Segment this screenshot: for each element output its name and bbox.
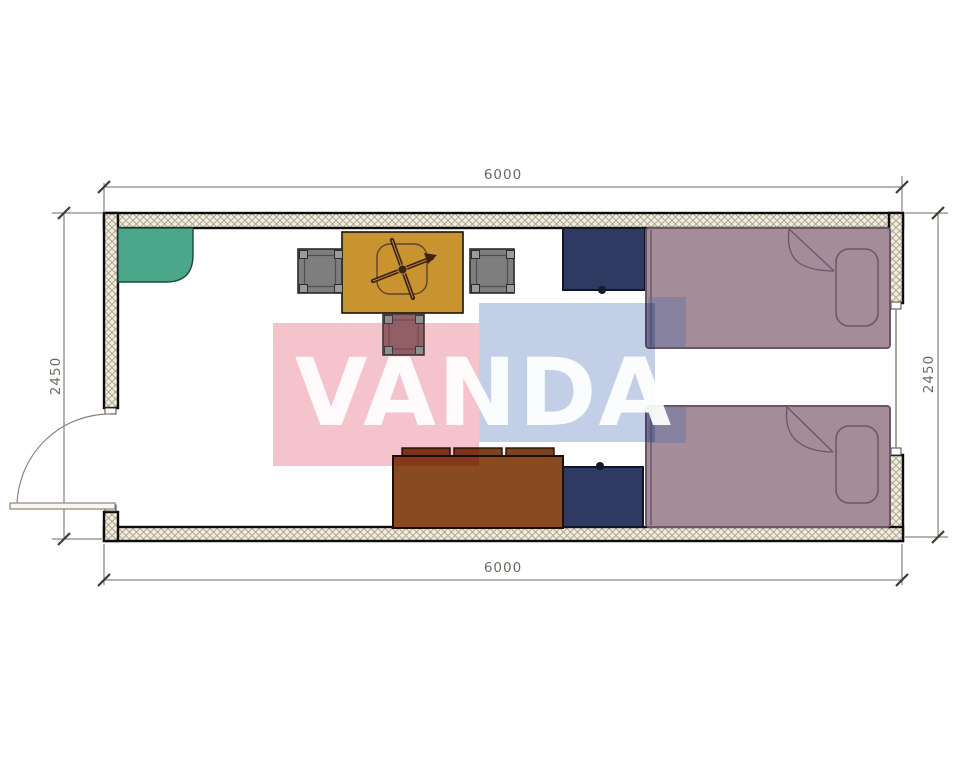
floor-plan-page: VANDA 6000 6000 2450 2450 bbox=[0, 0, 960, 768]
wall-bottom bbox=[104, 527, 903, 541]
pillow bbox=[836, 426, 878, 503]
wall-door-jamb-block bbox=[104, 512, 118, 541]
wall-top bbox=[104, 213, 903, 228]
dimension-label-bottom-width: 6000 bbox=[443, 560, 563, 576]
door-leaf bbox=[10, 503, 115, 509]
dining-table bbox=[342, 232, 463, 313]
bed-top bbox=[646, 228, 890, 348]
knob bbox=[598, 286, 606, 294]
wall-right-upper bbox=[889, 213, 903, 303]
chair-left bbox=[298, 249, 343, 293]
chair-right bbox=[470, 249, 515, 293]
bed-bottom bbox=[646, 406, 890, 527]
dimension-label-top-width: 6000 bbox=[443, 167, 563, 183]
entry-door bbox=[10, 414, 115, 509]
wardrobe-bottom bbox=[563, 462, 643, 527]
dimension-label-left-height: 2450 bbox=[48, 345, 64, 407]
pillow bbox=[836, 249, 878, 326]
watermark-text: VANDA bbox=[286, 347, 682, 441]
knob bbox=[596, 462, 604, 470]
corner-unit-green bbox=[118, 228, 193, 282]
wardrobe-top bbox=[563, 228, 645, 294]
wall-left bbox=[104, 213, 118, 408]
dimension-label-right-height: 2450 bbox=[921, 343, 937, 405]
